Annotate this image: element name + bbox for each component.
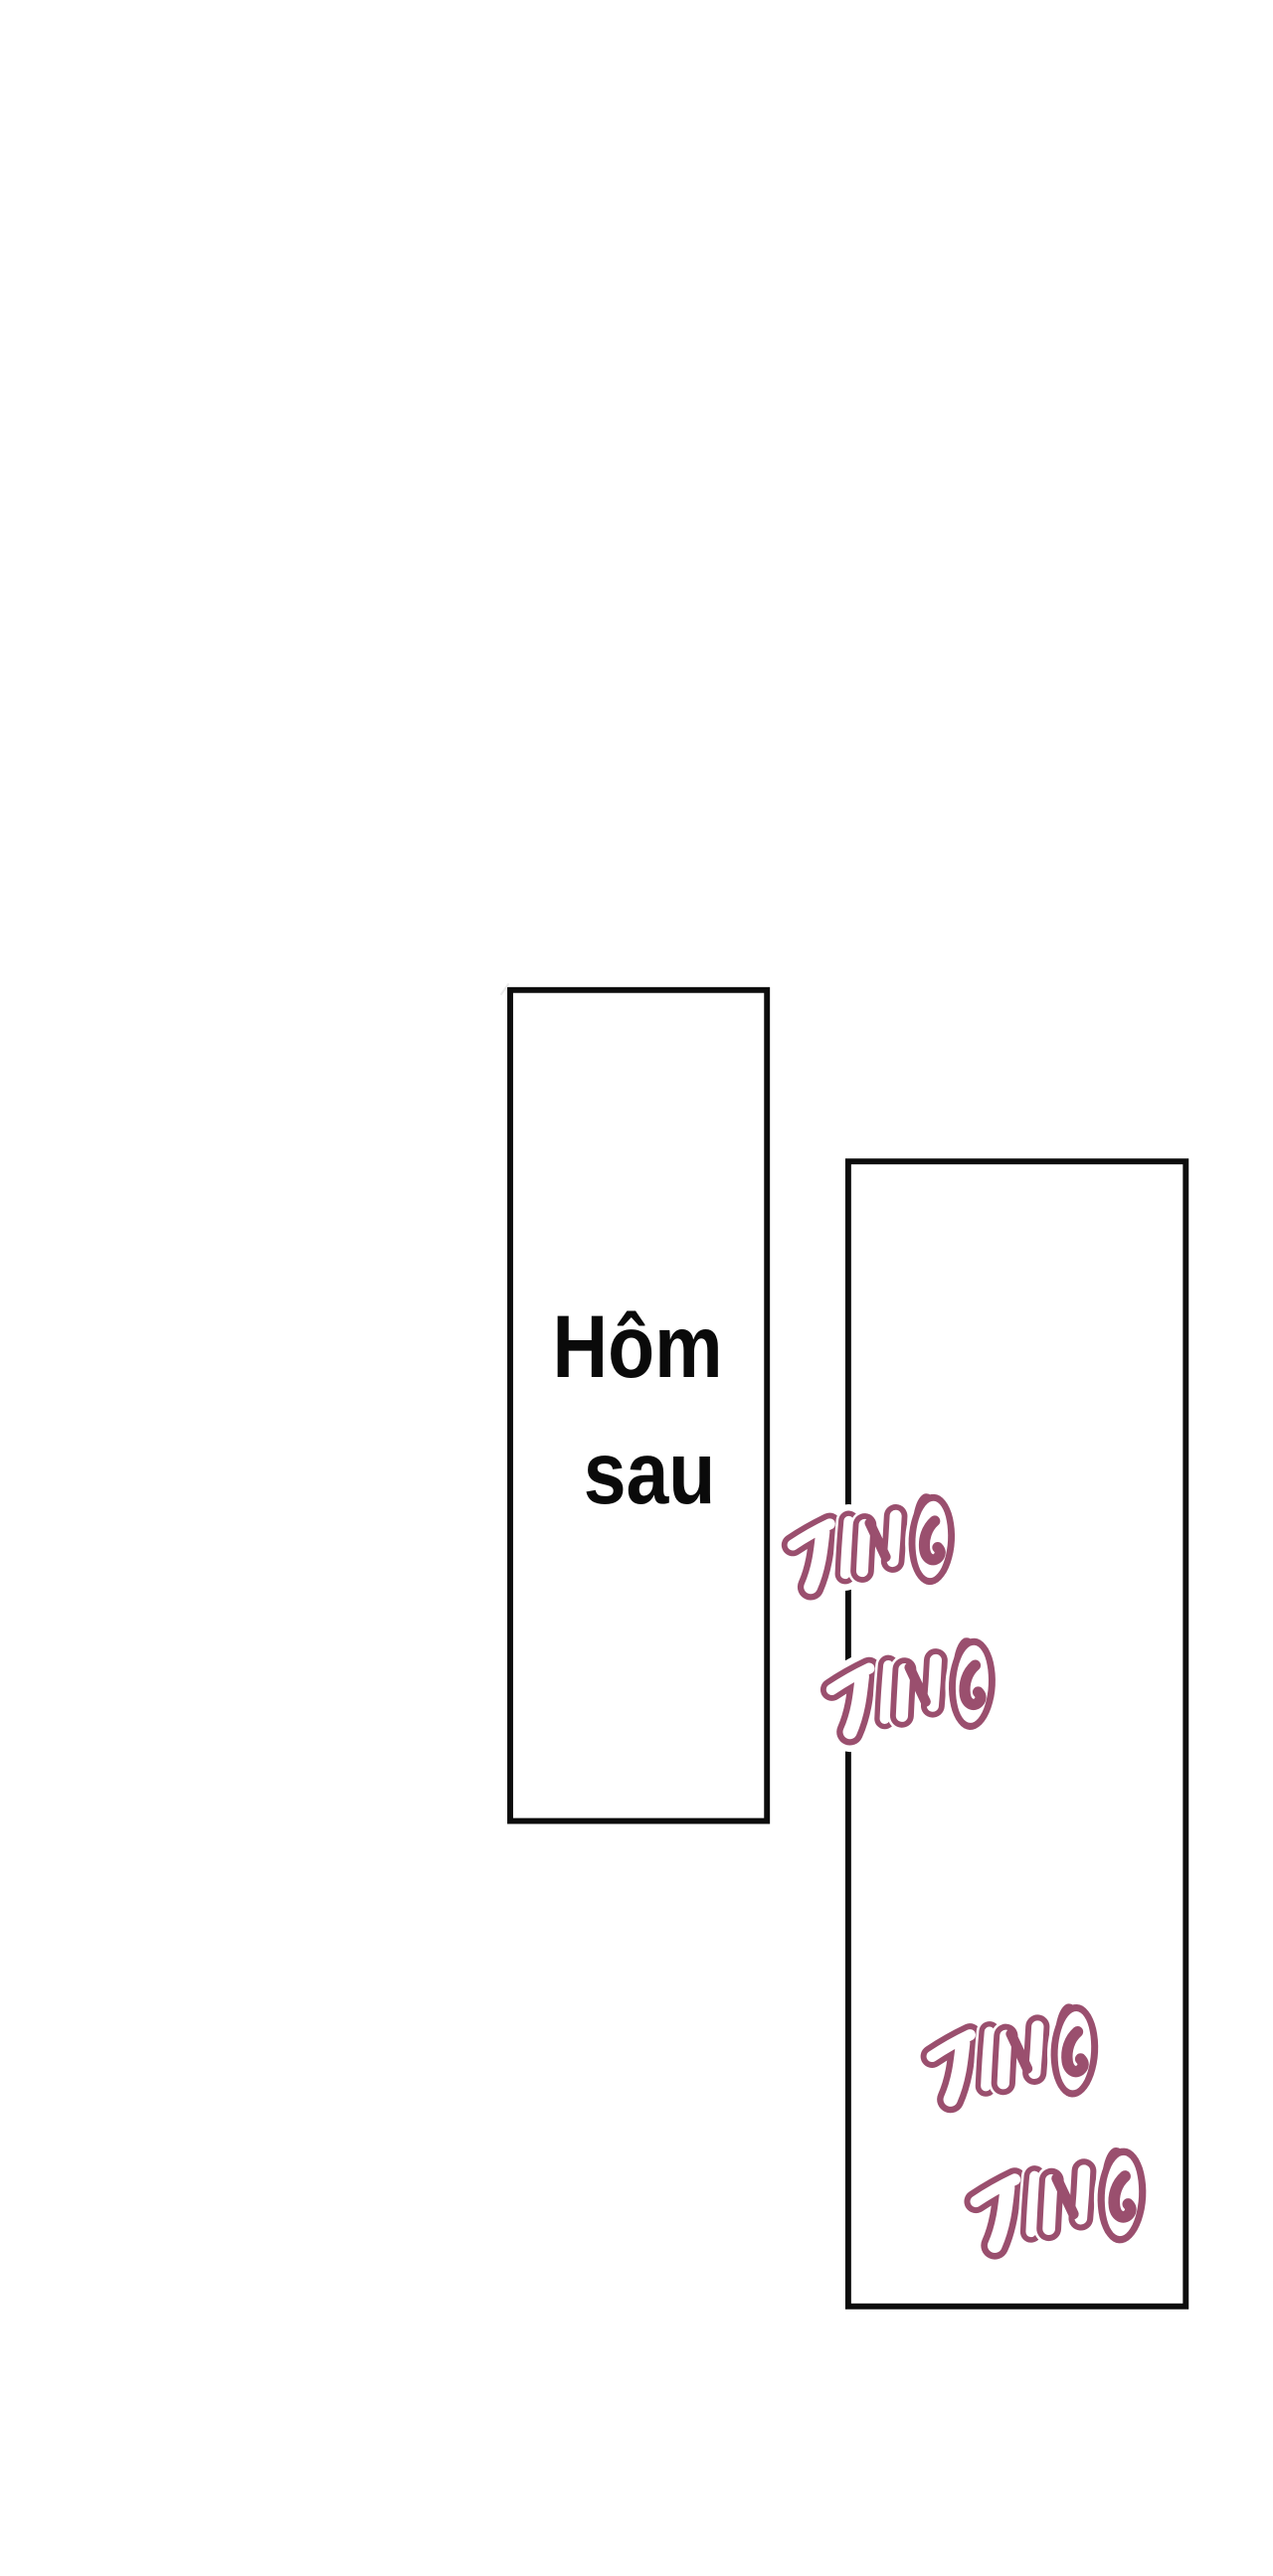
svg-text:sau: sau xyxy=(584,1424,716,1522)
svg-text:Hôm: Hôm xyxy=(552,1297,722,1396)
